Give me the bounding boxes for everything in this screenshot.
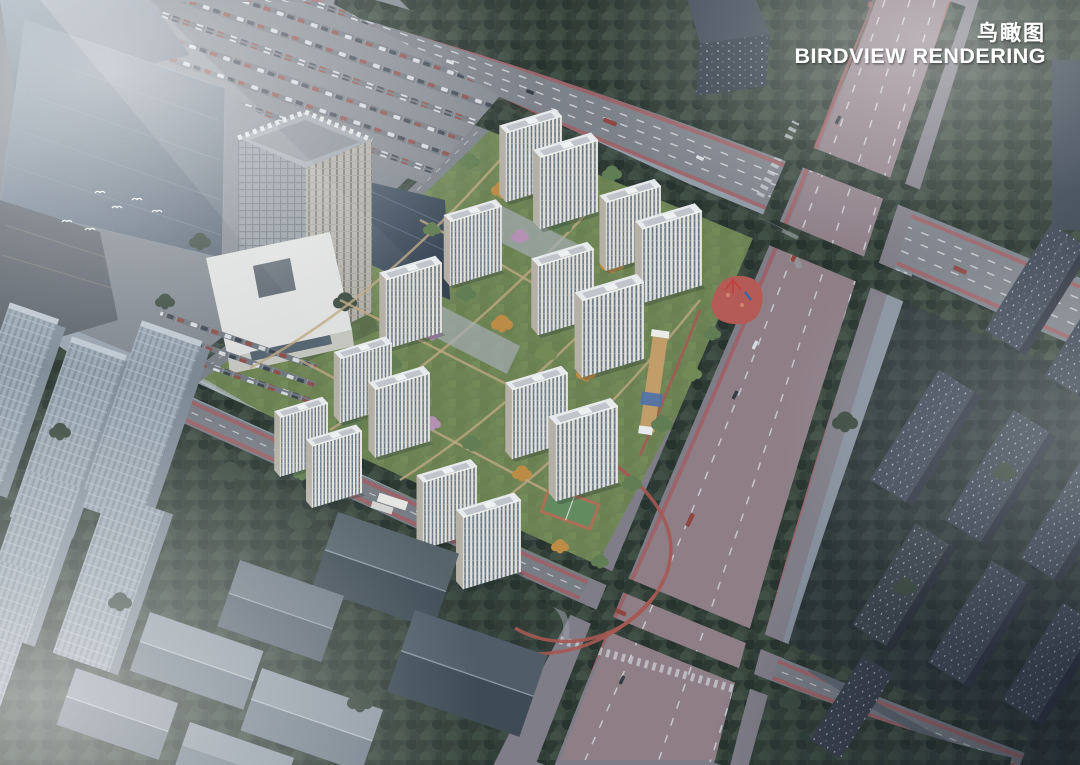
- birdview-rendering-svg: 鸟瞰图 BIRDVIEW RENDERING: [0, 0, 1080, 765]
- title-en: BIRDVIEW RENDERING: [795, 44, 1046, 68]
- birdview-rendering: 鸟瞰图 BIRDVIEW RENDERING: [0, 0, 1080, 765]
- fog-overlays: [0, 0, 1080, 765]
- title-cn: 鸟瞰图: [977, 21, 1046, 45]
